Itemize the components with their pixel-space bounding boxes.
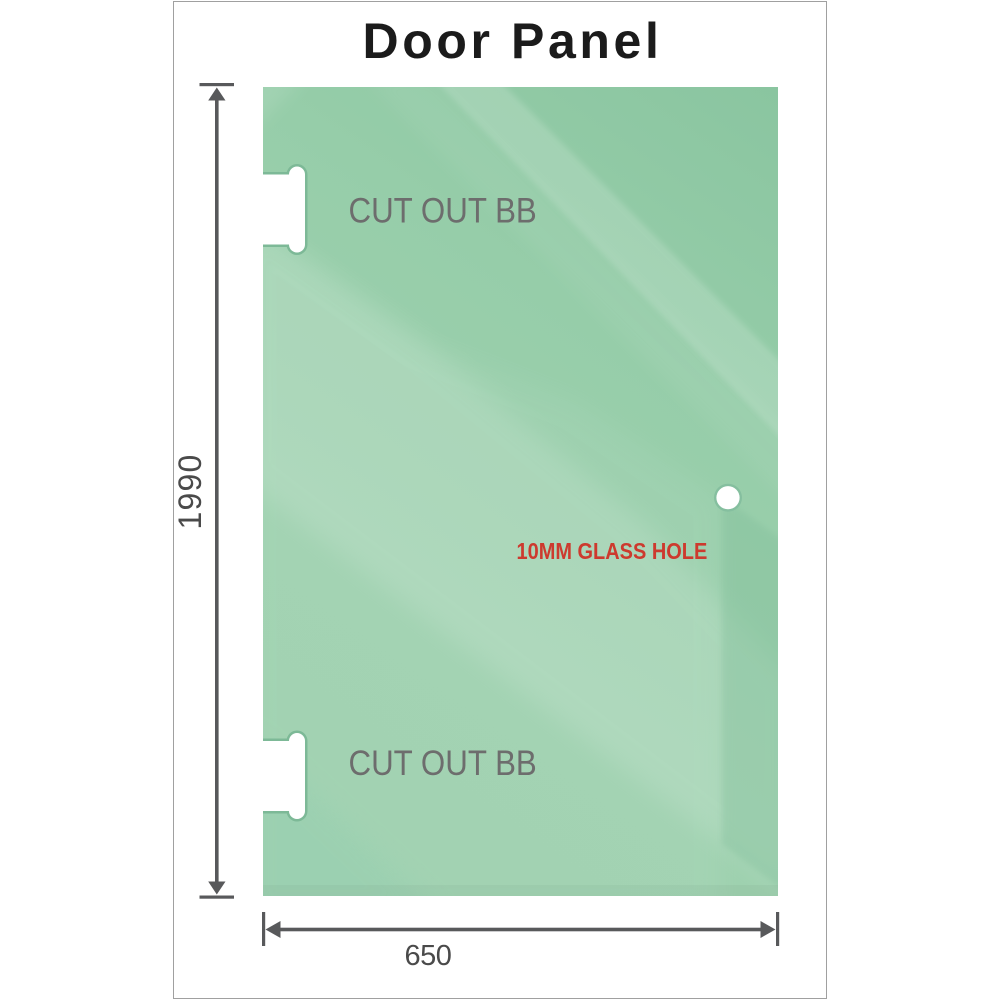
svg-text:1990: 1990 — [172, 454, 208, 530]
svg-text:650: 650 — [405, 940, 452, 972]
svg-text:CUT OUT BB: CUT OUT BB — [349, 192, 537, 231]
svg-text:Door Panel: Door Panel — [363, 13, 663, 69]
svg-text:10MM GLASS HOLE: 10MM GLASS HOLE — [517, 537, 708, 564]
svg-text:CUT OUT BB: CUT OUT BB — [349, 744, 537, 783]
